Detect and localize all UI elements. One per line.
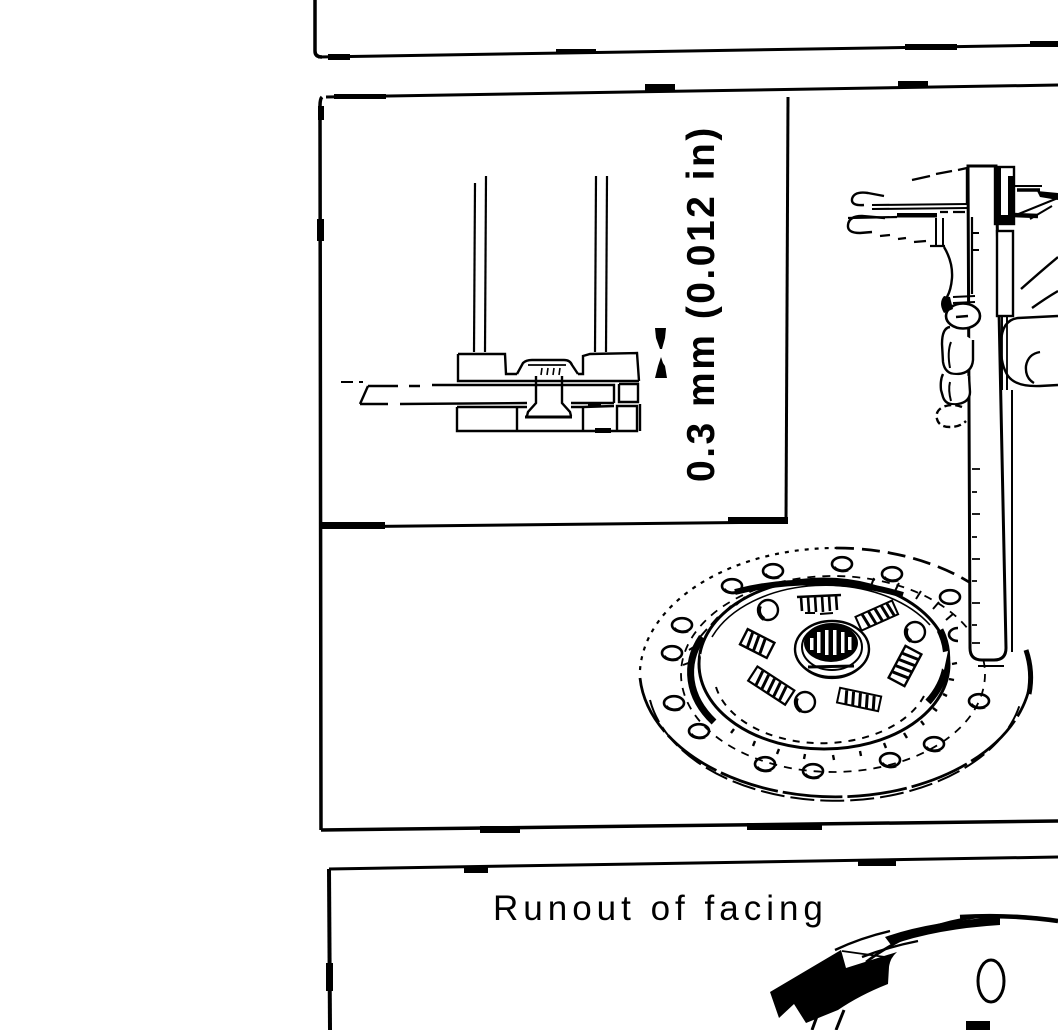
svg-text:Runout of facing: Runout of facing xyxy=(493,889,828,928)
svg-text:0.3 mm (0.012 in): 0.3 mm (0.012 in) xyxy=(680,125,723,482)
